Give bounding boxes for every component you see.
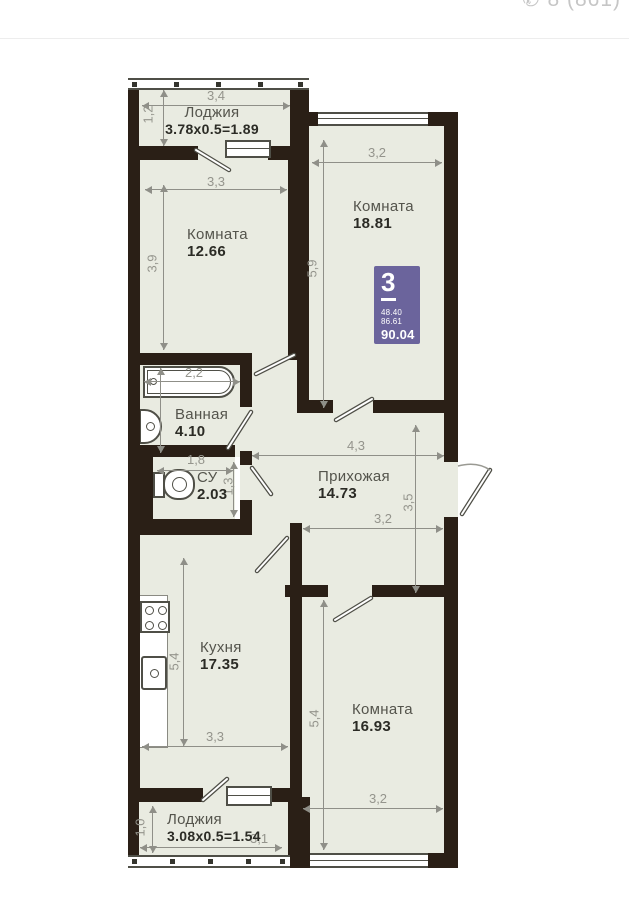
dimension-label: 3,3 <box>206 729 224 744</box>
dimension-label: 1,8 <box>187 452 205 467</box>
room-label-loggia-top: Лоджия 3.78x0.5=1.89 <box>165 104 259 138</box>
dimension-label: 3,2 <box>374 511 392 526</box>
dimension-arrow <box>144 381 240 382</box>
dimension-label: 3,9 <box>145 252 160 276</box>
floorplan-page: ✆ 8 (861) <box>0 0 629 914</box>
dimension-arrow <box>163 185 164 350</box>
wall <box>268 146 290 160</box>
wall <box>270 788 290 802</box>
balcony-door-bottom <box>226 786 272 806</box>
wall <box>297 400 333 413</box>
balcony-door-top <box>225 140 271 158</box>
door-opening-kitchen <box>252 523 290 535</box>
room-label-bathroom: Ванная 4.10 <box>175 406 228 440</box>
window <box>310 853 428 868</box>
wall <box>128 788 203 802</box>
phone-number-partial[interactable]: ✆ 8 (861) <box>522 0 621 12</box>
door-opening-room-top <box>333 400 373 413</box>
kitchen-sink <box>141 656 167 690</box>
dimension-label: 3,3 <box>207 174 225 189</box>
wall <box>128 519 252 535</box>
window <box>318 112 428 126</box>
room-label-room-bottom-right: Комната 16.93 <box>352 701 413 735</box>
dimension-arrow <box>312 162 442 163</box>
door-opening-room-bottom <box>328 585 372 597</box>
apartment-badge: 3 48.40 86.61 90.04 <box>374 266 420 344</box>
badge-divider <box>381 298 396 301</box>
phone-icon: ✆ <box>522 0 541 11</box>
wall <box>128 450 153 519</box>
door-opening-bathroom <box>240 407 252 451</box>
door-opening-wc <box>240 465 252 500</box>
dimension-arrow <box>303 528 443 529</box>
badge-living-area: 48.40 <box>381 308 420 317</box>
door-opening-entrance <box>444 462 458 517</box>
wall <box>290 523 302 797</box>
toilet <box>163 469 195 500</box>
room-label-kitchen: Кухня 17.35 <box>200 639 242 673</box>
dimension-label: 5,9 <box>305 257 320 281</box>
badge-area-without-loggia: 86.61 <box>381 317 420 326</box>
phone-number-text: 8 (861) <box>547 0 621 11</box>
dimension-label: 1,0 <box>133 816 148 840</box>
dimension-arrow <box>140 847 282 848</box>
room-label-wc: СУ 2.03 <box>197 469 227 503</box>
wall <box>444 517 458 868</box>
dimension-label: 5,4 <box>307 707 322 731</box>
dimension-arrow <box>183 558 184 746</box>
dimension-arrow <box>160 368 161 453</box>
dimension-label: 1,2 <box>141 103 156 127</box>
stove <box>140 601 170 633</box>
dimension-label: 3,5 <box>401 491 416 515</box>
dimension-arrow <box>323 140 324 408</box>
wall <box>373 400 458 413</box>
loggia-glazing-bottom <box>128 855 290 868</box>
badge-rooms-count: 3 <box>381 270 420 295</box>
dimension-arrow <box>163 90 164 146</box>
dimension-label: 3,4 <box>207 88 225 103</box>
badge-total-area: 90.04 <box>381 327 420 342</box>
room-label-loggia-bottom: Лоджия 3.08x0.5=1.54 <box>167 811 261 845</box>
dimension-arrow <box>152 806 153 853</box>
wall <box>128 353 252 365</box>
wall <box>285 585 328 597</box>
dimension-label: 3,2 <box>368 145 386 160</box>
dimension-label: 3,2 <box>369 791 387 806</box>
header-divider <box>0 38 629 39</box>
dimension-arrow <box>142 746 288 747</box>
dimension-label: 2,2 <box>185 365 203 380</box>
dimension-arrow <box>323 600 324 850</box>
room-label-room-top-right: Комната 18.81 <box>353 198 414 232</box>
entrance-door-arc <box>458 464 490 470</box>
dimension-label: 4,3 <box>347 438 365 453</box>
dimension-label: 5,4 <box>167 650 182 674</box>
room-label-hallway: Прихожая 14.73 <box>318 468 390 502</box>
room-label-room-top-left: Комната 12.66 <box>187 226 248 260</box>
dimension-arrow <box>303 808 443 809</box>
